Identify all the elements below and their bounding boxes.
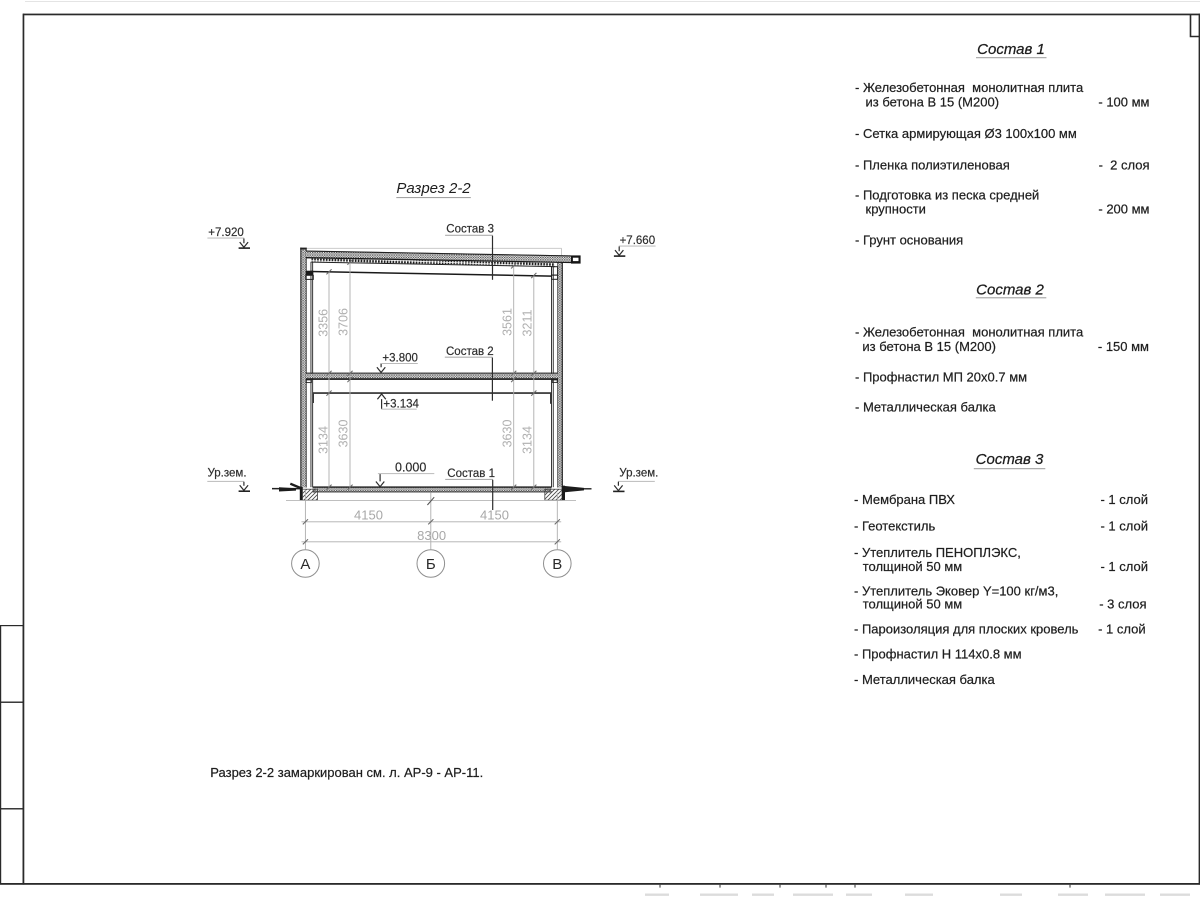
svg-text:0.000: 0.000 [395,460,426,474]
svg-text:3356: 3356 [317,309,331,337]
svg-text:Б: Б [426,556,436,573]
svg-text:- Профнастил Н 114x0.8 мм: - Профнастил Н 114x0.8 мм [854,646,1022,661]
svg-text:Состав 1: Состав 1 [447,468,495,480]
svg-text:- 3 слоя: - 3 слоя [1099,597,1146,612]
svg-text:- Металлическая балка: - Металлическая балка [855,399,996,414]
svg-text:- Утеплитель ПЕНОПЛЭКС,: - Утеплитель ПЕНОПЛЭКС, [854,545,1021,560]
svg-text:- Грунт основания: - Грунт основания [855,233,963,248]
svg-text:4150: 4150 [354,508,383,523]
svg-text:+7.660: +7.660 [620,235,656,247]
svg-text:3630: 3630 [501,420,515,448]
svg-text:- Металлическая балка: - Металлическая балка [854,672,995,687]
svg-text:- Сетка армирующая Ø3 100x100: - Сетка армирующая Ø3 100x100 мм [855,126,1077,141]
svg-text:толщиной 50 мм: толщиной 50 мм [863,597,963,612]
svg-text:- Профнастил МП 20x0.7 мм: - Профнастил МП 20x0.7 мм [855,369,1027,384]
svg-text:3134: 3134 [521,426,535,454]
svg-text:Ур.зем.: Ур.зем. [208,468,247,480]
svg-text:3630: 3630 [336,420,350,448]
svg-text:+3.800: +3.800 [382,352,418,364]
svg-text:Состав 2: Состав 2 [446,346,494,358]
svg-text:- 1 слой: - 1 слой [1100,518,1148,533]
svg-text:толщиной 50 мм: толщиной 50 мм [863,559,963,574]
svg-text:+7.920: +7.920 [208,227,244,239]
svg-text:3134: 3134 [317,426,331,454]
svg-text:Состав 3: Состав 3 [446,223,494,235]
svg-text:- Железобетонная монолитная п: - Железобетонная монолитная плита [855,325,1084,340]
svg-text:- 2 слоя: - 2 слоя [1099,157,1150,172]
svg-text:Состав 3: Состав 3 [976,451,1044,468]
svg-text:Состав 2: Состав 2 [976,282,1044,299]
svg-text:Разрез 2-2 замаркирован см. л.: Разрез 2-2 замаркирован см. л. АР-9 - АР… [210,765,483,780]
svg-text:3561: 3561 [501,308,515,336]
svg-text:- Геотекстиль: - Геотекстиль [854,518,935,533]
svg-text:- 1 слой: - 1 слой [1100,559,1148,574]
svg-text:3706: 3706 [336,308,350,336]
svg-text:3211: 3211 [521,310,535,337]
svg-text:4150: 4150 [480,508,509,523]
svg-text:+3.134: +3.134 [383,398,419,410]
svg-text:- Подготовка из песка средней: - Подготовка из песка средней [855,187,1039,202]
svg-text:В: В [552,556,562,573]
svg-text:Разрез 2-2: Разрез 2-2 [396,180,471,197]
svg-text:Ур.зем.: Ур.зем. [619,468,658,480]
svg-text:из бетона В 15 (М200): из бетона В 15 (М200) [862,339,996,354]
svg-text:8300: 8300 [417,528,446,543]
svg-text:- Пароизоляция для плоских кро: - Пароизоляция для плоских кровель [854,621,1079,636]
svg-text:А: А [300,556,310,573]
svg-text:- 150 мм: - 150 мм [1098,339,1149,354]
svg-text:- 1 слой: - 1 слой [1100,492,1148,507]
svg-text:- Мембрана ПВХ: - Мембрана ПВХ [854,492,955,507]
svg-text:крупности: крупности [866,202,926,217]
svg-text:из бетона В 15 (М200): из бетона В 15 (М200) [866,94,1000,109]
svg-text:- 1 слой: - 1 слой [1098,621,1146,636]
svg-text:Состав 1: Состав 1 [977,41,1045,58]
svg-text:- 100 мм: - 100 мм [1098,94,1149,109]
svg-text:- Железобетонная монолитная п: - Железобетонная монолитная плита [855,80,1084,95]
svg-text:- 200 мм: - 200 мм [1098,202,1149,217]
svg-text:- Пленка полиэтиленовая: - Пленка полиэтиленовая [855,157,1010,172]
